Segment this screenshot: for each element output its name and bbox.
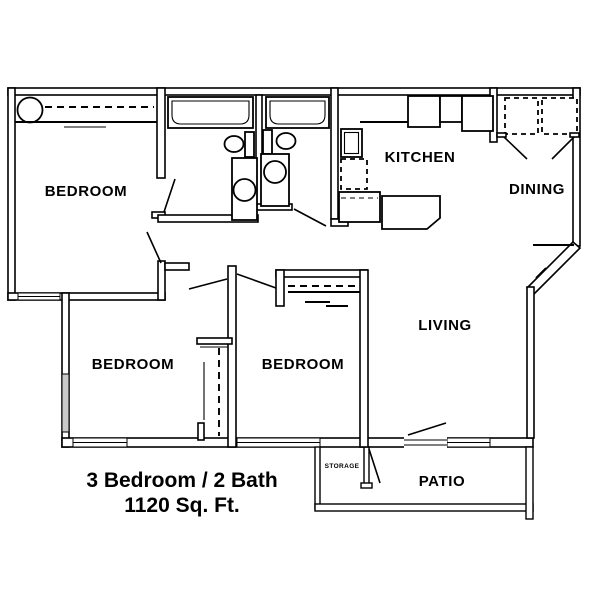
bedroom3-door-leaf [237, 274, 276, 288]
floor-plan-page: BEDROOM BEDROOM BEDROOM KITCHEN DINING L… [0, 0, 600, 600]
bedroom1-closet [15, 98, 157, 128]
bath1-door-leaf [164, 179, 175, 212]
bedroom3-label: BEDROOM [262, 356, 345, 373]
breakfast-bar-icon [382, 196, 440, 229]
vanity-sink-icon [264, 161, 286, 183]
hall-closet-door-leaf [147, 232, 161, 263]
vanity-sink-icon [234, 179, 256, 201]
caption-line2: 1120 Sq. Ft. [124, 494, 240, 517]
water-heater-icon [18, 98, 43, 123]
bathtub-icon [168, 97, 253, 128]
dishwasher-icon [341, 159, 367, 189]
caption: 3 Bedroom / 2 Bath 1120 Sq. Ft. [86, 469, 277, 517]
storage-left-wall [315, 447, 320, 509]
caption-line1: 3 Bedroom / 2 Bath [86, 469, 277, 492]
floor-plan-drawing: BEDROOM BEDROOM BEDROOM KITCHEN DINING L… [0, 0, 600, 600]
range-icon [408, 96, 440, 127]
washer-icon [505, 98, 538, 134]
patio-door-leaf [408, 423, 446, 435]
bedroom1-label: BEDROOM [45, 183, 128, 200]
patio-right-wall [526, 447, 533, 519]
dining-label: DINING [509, 181, 565, 198]
bedroom3-door-jamb [276, 270, 284, 306]
patio-door-opening [404, 437, 447, 448]
patio-label: PATIO [419, 473, 466, 490]
bath2-door-leaf [294, 209, 326, 226]
laundry-jamb-left [497, 133, 506, 137]
left-wall-upper [8, 88, 15, 300]
bedroom2-bedroom3-wall [228, 266, 236, 447]
toilet-icon [225, 136, 244, 152]
laundry-bifold-right-leaf [552, 137, 574, 159]
bedroom2-door-leaf [189, 279, 227, 289]
bedroom3-right-wall [360, 270, 368, 447]
bathroom2 [261, 97, 329, 206]
refrigerator-icon [462, 96, 493, 131]
bedroom2-closet [197, 338, 232, 440]
toilet-tank [245, 132, 254, 157]
counter-section [440, 96, 462, 122]
angled-wall [527, 242, 580, 294]
storage-door-jamb [361, 483, 372, 488]
toilet-tank [263, 130, 272, 154]
bedroom3-top-wall [276, 270, 367, 277]
bedroom3-closet [288, 286, 360, 306]
storage-label: STORAGE [325, 463, 360, 470]
dryer-icon [542, 98, 577, 134]
bedroom1-right-wall [157, 88, 165, 178]
living-label: LIVING [418, 317, 472, 334]
kitchen-label: KITCHEN [385, 149, 456, 166]
storage-door-leaf [369, 449, 380, 483]
base-cabinet [339, 192, 380, 222]
kitchen-left-wall [331, 88, 338, 219]
laundry-closet [497, 98, 579, 137]
toilet-icon [277, 133, 296, 149]
closet-bottom-jamb [198, 423, 204, 440]
closet-top-wall [197, 338, 232, 344]
living-right-wall [527, 287, 534, 438]
laundry-jamb-right [570, 133, 579, 137]
laundry-bifold-left-leaf [504, 137, 527, 159]
hall-corner-wall [158, 261, 165, 300]
bathroom1 [168, 97, 257, 220]
patio-bottom-wall [315, 504, 533, 511]
bedroom2-label: BEDROOM [92, 356, 175, 373]
bedroom2-nook-wall [165, 263, 189, 270]
storage-right-wall [364, 447, 369, 485]
bedroom2-side-window [62, 374, 69, 432]
